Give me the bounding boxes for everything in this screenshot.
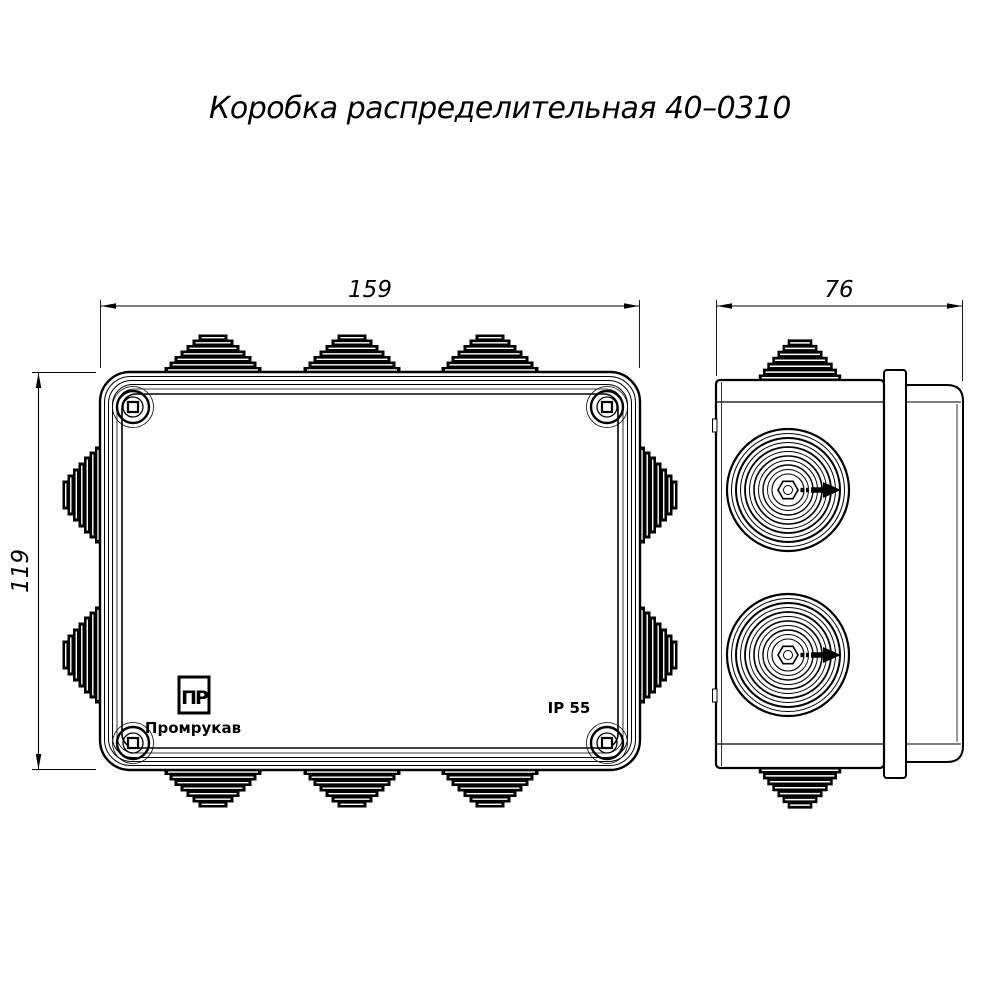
cable-glands-top: [165, 335, 538, 373]
cable-gland: [165, 769, 261, 807]
cable-gland: [639, 447, 677, 543]
cable-gland: [639, 607, 677, 703]
height-value: 119: [8, 549, 34, 593]
cable-gland: [304, 335, 400, 373]
cable-gland: [442, 335, 538, 373]
cable-gland: [759, 340, 841, 381]
cable-gland: [759, 767, 841, 808]
cable-glands-left: [63, 447, 101, 703]
side-back-body: [906, 385, 963, 762]
cable-glands-right: [639, 447, 677, 703]
dimension-depth: 76: [717, 277, 963, 381]
cable-gland: [165, 335, 261, 373]
cable-gland: [63, 447, 101, 543]
technical-drawing: Коробка распределительная 40–0310: [0, 0, 1000, 1000]
drawing-page: Коробка распределительная 40–0310: [0, 0, 1000, 1000]
cable-gland: [304, 769, 400, 807]
drawing-title: Коробка распределительная 40–0310: [209, 91, 791, 126]
ip-rating-label: IP 55: [548, 699, 591, 717]
cable-glands-bottom: [165, 769, 538, 807]
cover-flange: [884, 370, 906, 778]
dimension-height: 119: [8, 373, 96, 770]
cable-gland: [442, 769, 538, 807]
depth-value: 76: [824, 277, 853, 303]
width-value: 159: [348, 277, 392, 303]
cable-gland: [63, 607, 101, 703]
logo-monogram: ПР: [181, 687, 209, 709]
side-view: [713, 340, 964, 808]
front-view: ПР Промрукав IP 55: [63, 335, 677, 807]
brand-name: Промрукав: [145, 719, 241, 737]
